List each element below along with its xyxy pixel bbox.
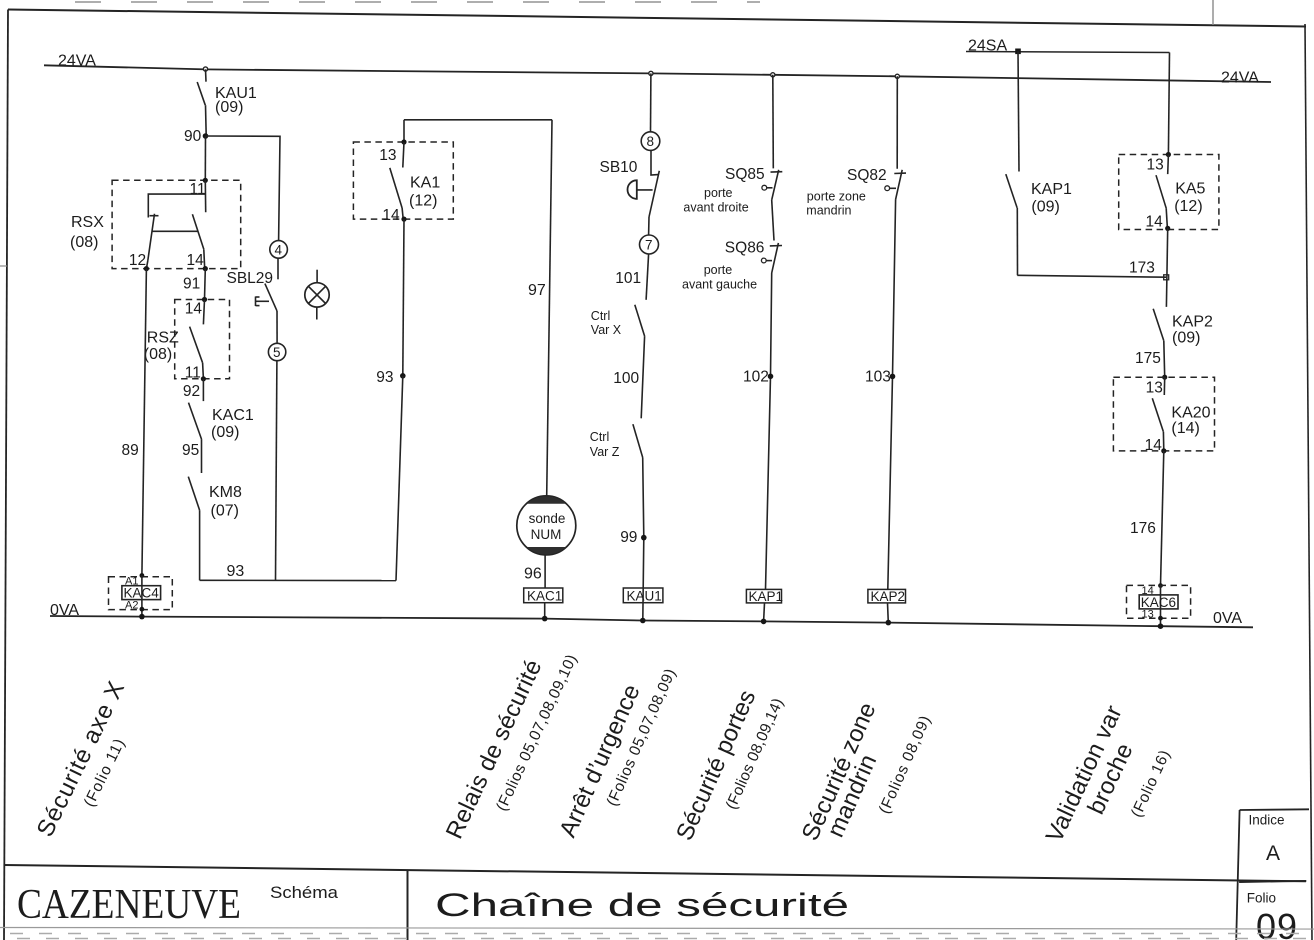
svg-text:KAP2: KAP2 (1172, 314, 1213, 331)
svg-text:Var X: Var X (591, 323, 622, 337)
svg-text:SQ86: SQ86 (725, 240, 765, 257)
svg-text:176: 176 (1130, 520, 1156, 537)
svg-text:95: 95 (182, 442, 199, 459)
svg-text:13: 13 (1147, 157, 1164, 174)
svg-text:Indice: Indice (1249, 813, 1285, 828)
svg-text:90: 90 (184, 128, 202, 145)
svg-text:KAC4: KAC4 (124, 586, 160, 601)
svg-text:13: 13 (1142, 609, 1154, 621)
svg-text:13: 13 (1146, 380, 1163, 397)
svg-text:Ctrl: Ctrl (590, 430, 609, 444)
svg-text:14: 14 (185, 301, 203, 318)
svg-text:CAZENEUVE: CAZENEUVE (17, 882, 241, 928)
svg-text:KAC1: KAC1 (527, 589, 562, 604)
svg-text:KAP1: KAP1 (1031, 181, 1072, 198)
svg-text:SB10: SB10 (600, 159, 638, 176)
svg-text:102: 102 (743, 369, 769, 386)
svg-text:porte: porte (704, 263, 733, 277)
svg-text:175: 175 (1135, 350, 1161, 367)
svg-text:93: 93 (376, 369, 393, 386)
svg-text:A: A (1266, 842, 1280, 865)
svg-text:KA1: KA1 (410, 175, 440, 192)
svg-text:89: 89 (122, 442, 139, 459)
svg-text:mandrin: mandrin (806, 204, 851, 218)
svg-text:97: 97 (528, 282, 546, 299)
svg-text:(08): (08) (70, 234, 98, 251)
svg-text:sonde: sonde (529, 511, 566, 526)
svg-text:Ctrl: Ctrl (591, 309, 610, 323)
svg-text:(07): (07) (211, 503, 239, 520)
svg-text:100: 100 (613, 370, 639, 387)
svg-text:8: 8 (647, 134, 655, 149)
svg-text:5: 5 (273, 345, 281, 360)
svg-text:KM8: KM8 (209, 484, 242, 501)
svg-text:14: 14 (187, 252, 205, 269)
svg-text:14: 14 (1146, 214, 1164, 231)
svg-text:14: 14 (1145, 437, 1163, 454)
svg-text:KAP2: KAP2 (871, 589, 906, 604)
svg-text:24VA: 24VA (1221, 70, 1259, 87)
svg-text:0VA: 0VA (50, 602, 79, 619)
svg-text:RSZ: RSZ (147, 330, 179, 347)
svg-text:101: 101 (615, 270, 641, 287)
svg-text:KAP1: KAP1 (749, 589, 784, 604)
svg-text:11: 11 (190, 181, 206, 198)
svg-text:(14): (14) (1171, 420, 1199, 437)
svg-text:103: 103 (865, 369, 891, 386)
svg-text:KA5: KA5 (1175, 181, 1205, 198)
svg-text:4: 4 (275, 243, 283, 258)
svg-text:(09): (09) (1172, 330, 1200, 347)
svg-text:12: 12 (129, 252, 146, 269)
svg-text:173: 173 (1129, 260, 1155, 277)
svg-text:0VA: 0VA (1213, 610, 1242, 627)
svg-text:Schéma: Schéma (270, 883, 339, 902)
svg-text:(09): (09) (1031, 199, 1059, 216)
svg-text:avant gauche: avant gauche (682, 277, 757, 291)
svg-text:91: 91 (183, 276, 200, 293)
svg-text:avant droite: avant droite (683, 201, 748, 215)
svg-text:24VA: 24VA (58, 53, 96, 70)
svg-text:(09): (09) (211, 424, 239, 441)
svg-text:KAU1: KAU1 (627, 589, 662, 604)
svg-text:SQ82: SQ82 (847, 167, 887, 184)
svg-text:Var Z: Var Z (590, 445, 620, 459)
svg-text:(09): (09) (215, 99, 243, 116)
svg-text:RSX: RSX (71, 214, 104, 231)
svg-text:14: 14 (382, 207, 400, 224)
svg-text:SQ85: SQ85 (725, 166, 765, 183)
svg-text:11: 11 (185, 365, 201, 382)
svg-text:(12): (12) (1174, 198, 1202, 215)
svg-text:99: 99 (620, 529, 637, 546)
svg-text:13: 13 (379, 147, 396, 164)
svg-text:96: 96 (524, 566, 542, 583)
svg-text:A2: A2 (125, 600, 138, 612)
svg-text:Chaîne de sécurité: Chaîne de sécurité (435, 887, 849, 923)
svg-text:porte zone: porte zone (807, 190, 866, 204)
svg-text:NUM: NUM (531, 527, 562, 542)
svg-text:93: 93 (227, 563, 245, 580)
svg-text:(08): (08) (144, 346, 172, 363)
svg-text:Folio: Folio (1247, 891, 1276, 906)
svg-text:KA20: KA20 (1171, 405, 1210, 422)
svg-text:09: 09 (1256, 906, 1298, 940)
svg-text:porte: porte (704, 186, 733, 200)
svg-text:7: 7 (645, 238, 653, 253)
svg-text:92: 92 (183, 383, 200, 400)
svg-text:(12): (12) (409, 193, 437, 210)
svg-text:KAC1: KAC1 (212, 407, 254, 424)
